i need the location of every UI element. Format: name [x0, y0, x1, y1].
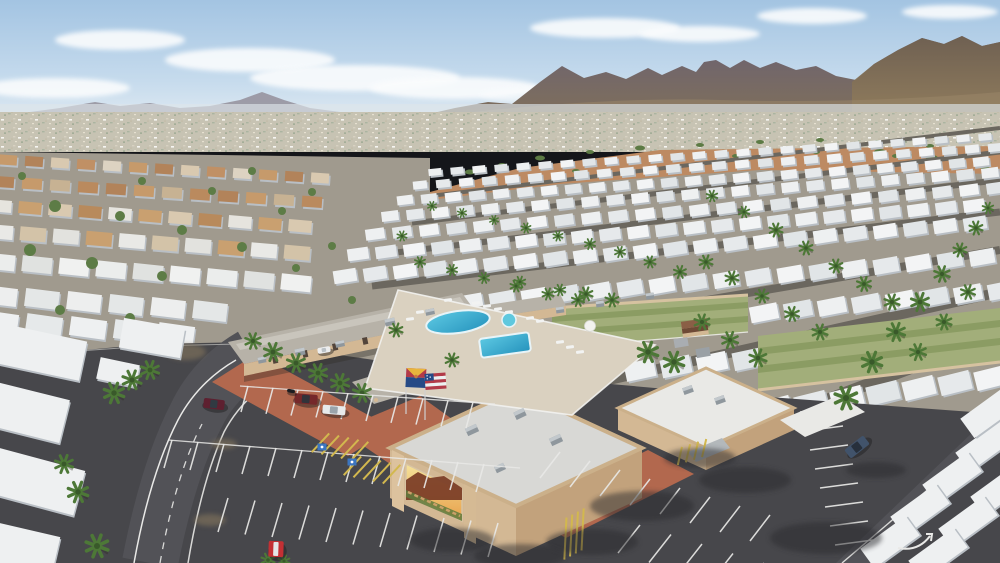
mobile-home [288, 219, 314, 235]
mobile-home [551, 171, 567, 183]
mobile-home [21, 255, 54, 276]
mobile-home [758, 147, 773, 157]
mobile-home [780, 145, 795, 155]
pavilion-pillar [374, 398, 378, 402]
mobile-home [0, 154, 19, 167]
mobile-home [877, 162, 896, 175]
mobile-home [831, 177, 851, 191]
mobile-home [181, 165, 201, 178]
aerial-scene [0, 0, 1000, 563]
mobile-home [631, 192, 651, 206]
mobile-home [978, 133, 993, 143]
mobile-home [283, 245, 312, 263]
mobile-home [481, 203, 501, 217]
mobile-home [560, 159, 575, 169]
mobile-home [302, 196, 324, 210]
mobile-home [243, 271, 276, 292]
mobile-home [827, 153, 843, 165]
mobile-home [643, 165, 659, 177]
mobile-home [162, 187, 184, 201]
mobile-home [853, 164, 872, 177]
aerial-photo: Aerial view of a desert mobile home park… [0, 0, 1000, 563]
mobile-home [52, 228, 81, 246]
mobile-home [901, 161, 920, 174]
ac-unit [556, 306, 565, 313]
mobile-home [151, 235, 180, 253]
mobile-home [735, 159, 751, 171]
mobile-home [516, 162, 531, 172]
mobile-home [450, 166, 465, 176]
mobile-home [0, 176, 16, 190]
mobile-home [428, 168, 443, 178]
mobile-home [134, 185, 156, 199]
mobile-home [538, 161, 553, 171]
mobile-home [103, 160, 123, 173]
mobile-home [436, 179, 452, 191]
mobile-home [259, 169, 279, 182]
mobile-home [736, 148, 751, 158]
mobile-home [912, 137, 927, 147]
mobile-home [931, 170, 951, 184]
spa-hot-tub [502, 313, 516, 327]
mobile-home [541, 185, 560, 198]
mobile-home [934, 135, 949, 145]
mobile-home [656, 190, 676, 204]
mobile-home [431, 206, 451, 220]
mobile-home [207, 166, 227, 179]
mobile-home [906, 172, 926, 186]
mobile-home [620, 167, 636, 179]
mobile-home [666, 164, 682, 176]
ac-unit [596, 300, 605, 307]
mobile-home [565, 183, 584, 196]
mobile-home [51, 157, 71, 170]
mobile-home [18, 201, 44, 217]
mobile-home [681, 188, 701, 202]
mobile-home [445, 191, 464, 204]
mobile-home [168, 211, 194, 227]
ac-unit [646, 292, 655, 299]
us-flag [424, 373, 446, 390]
mobile-home [689, 162, 705, 174]
mobile-home [250, 242, 279, 260]
mobile-home [50, 179, 72, 193]
mobile-home [949, 158, 968, 171]
mobile-home [517, 186, 536, 199]
mobile-home [413, 180, 429, 192]
mobile-home [925, 159, 944, 172]
mobile-home [856, 176, 876, 190]
mobile-home [528, 173, 544, 185]
mobile-home [0, 252, 17, 273]
mobile-home [850, 152, 866, 164]
mobile-home [406, 208, 426, 222]
mobile-home [118, 233, 147, 251]
mobile-home [890, 138, 905, 148]
mobile-home [556, 197, 576, 211]
mobile-home [184, 238, 213, 256]
mobile-home [472, 165, 487, 175]
mobile-home [981, 167, 1000, 181]
mobile-home [397, 194, 416, 207]
mobile-home [868, 140, 883, 150]
mobile-home [942, 146, 958, 158]
mobile-home [757, 170, 776, 183]
mobile-home [805, 167, 824, 180]
mobile-home [824, 142, 839, 152]
mobile-home [22, 178, 44, 192]
mobile-home [155, 163, 175, 176]
mobile-home [78, 181, 100, 195]
mobile-home [758, 158, 774, 170]
mobile-home [709, 174, 728, 187]
mobile-home [129, 162, 149, 175]
mobile-home [606, 194, 626, 208]
mobile-home [482, 176, 498, 188]
mobile-home [469, 190, 488, 203]
mobile-home [228, 215, 254, 231]
mobile-home [956, 134, 971, 144]
mobile-home [661, 177, 680, 190]
mobile-home [956, 168, 976, 182]
mobile-home [731, 185, 751, 199]
mobile-home [169, 265, 202, 286]
mobile-home [604, 156, 619, 166]
mobile-home [597, 168, 613, 180]
mobile-home [781, 156, 797, 168]
mobile-home [685, 175, 704, 188]
mobile-home [896, 149, 912, 161]
mobile-home [0, 199, 13, 215]
mobile-home [138, 209, 164, 225]
mobile-home [493, 188, 512, 201]
mobile-home [85, 231, 114, 249]
mobile-home [258, 217, 284, 233]
mobile-home [637, 178, 656, 191]
mobile-home [19, 226, 48, 244]
az-flag-field [405, 377, 425, 388]
mobile-home [274, 194, 296, 208]
mobile-home [494, 163, 509, 173]
mobile-home [692, 151, 707, 161]
mobile-home [802, 144, 817, 154]
mobile-home [581, 195, 601, 209]
mobile-home [25, 156, 45, 169]
mobile-home [613, 180, 632, 193]
arizona-flag [405, 368, 426, 388]
mobile-home [733, 172, 752, 185]
mobile-home [846, 141, 861, 151]
mobile-home [311, 172, 331, 185]
mobile-home [626, 155, 641, 165]
mobile-home [714, 149, 729, 159]
mobile-home [246, 192, 268, 206]
mobile-home [973, 156, 992, 169]
mobile-home [712, 161, 728, 173]
mobile-home [582, 158, 597, 168]
mobile-home [505, 174, 521, 186]
mobile-home [77, 159, 97, 172]
mobile-home [95, 260, 128, 281]
patio-umbrella [585, 321, 596, 332]
us-flag-canton [424, 373, 433, 381]
mobile-home [198, 213, 224, 229]
mobile-home [670, 152, 685, 162]
mobile-home [506, 201, 526, 215]
mobile-home [804, 155, 820, 167]
mobile-home [381, 210, 401, 224]
mobile-home [0, 224, 15, 242]
mobile-home [806, 179, 826, 193]
mobile-home [781, 181, 801, 195]
mobile-home [648, 154, 663, 164]
mobile-home [459, 177, 475, 189]
mobile-home [58, 258, 91, 279]
mobile-home [781, 169, 800, 182]
mobile-home [280, 273, 313, 294]
mobile-home [574, 170, 590, 182]
mobile-home [919, 147, 935, 159]
mobile-home [531, 199, 551, 213]
front-building-pilaster [392, 450, 404, 512]
mobile-home [285, 171, 305, 184]
mobile-home [829, 166, 848, 179]
mobile-home [106, 183, 128, 197]
mobile-home [589, 182, 608, 195]
mobile-home [78, 205, 104, 221]
mobile-home [873, 150, 889, 162]
mobile-home [218, 190, 240, 204]
mobile-home [756, 183, 776, 197]
mobile-home [965, 144, 981, 156]
mobile-home [881, 174, 901, 188]
mobile-home [206, 268, 239, 289]
